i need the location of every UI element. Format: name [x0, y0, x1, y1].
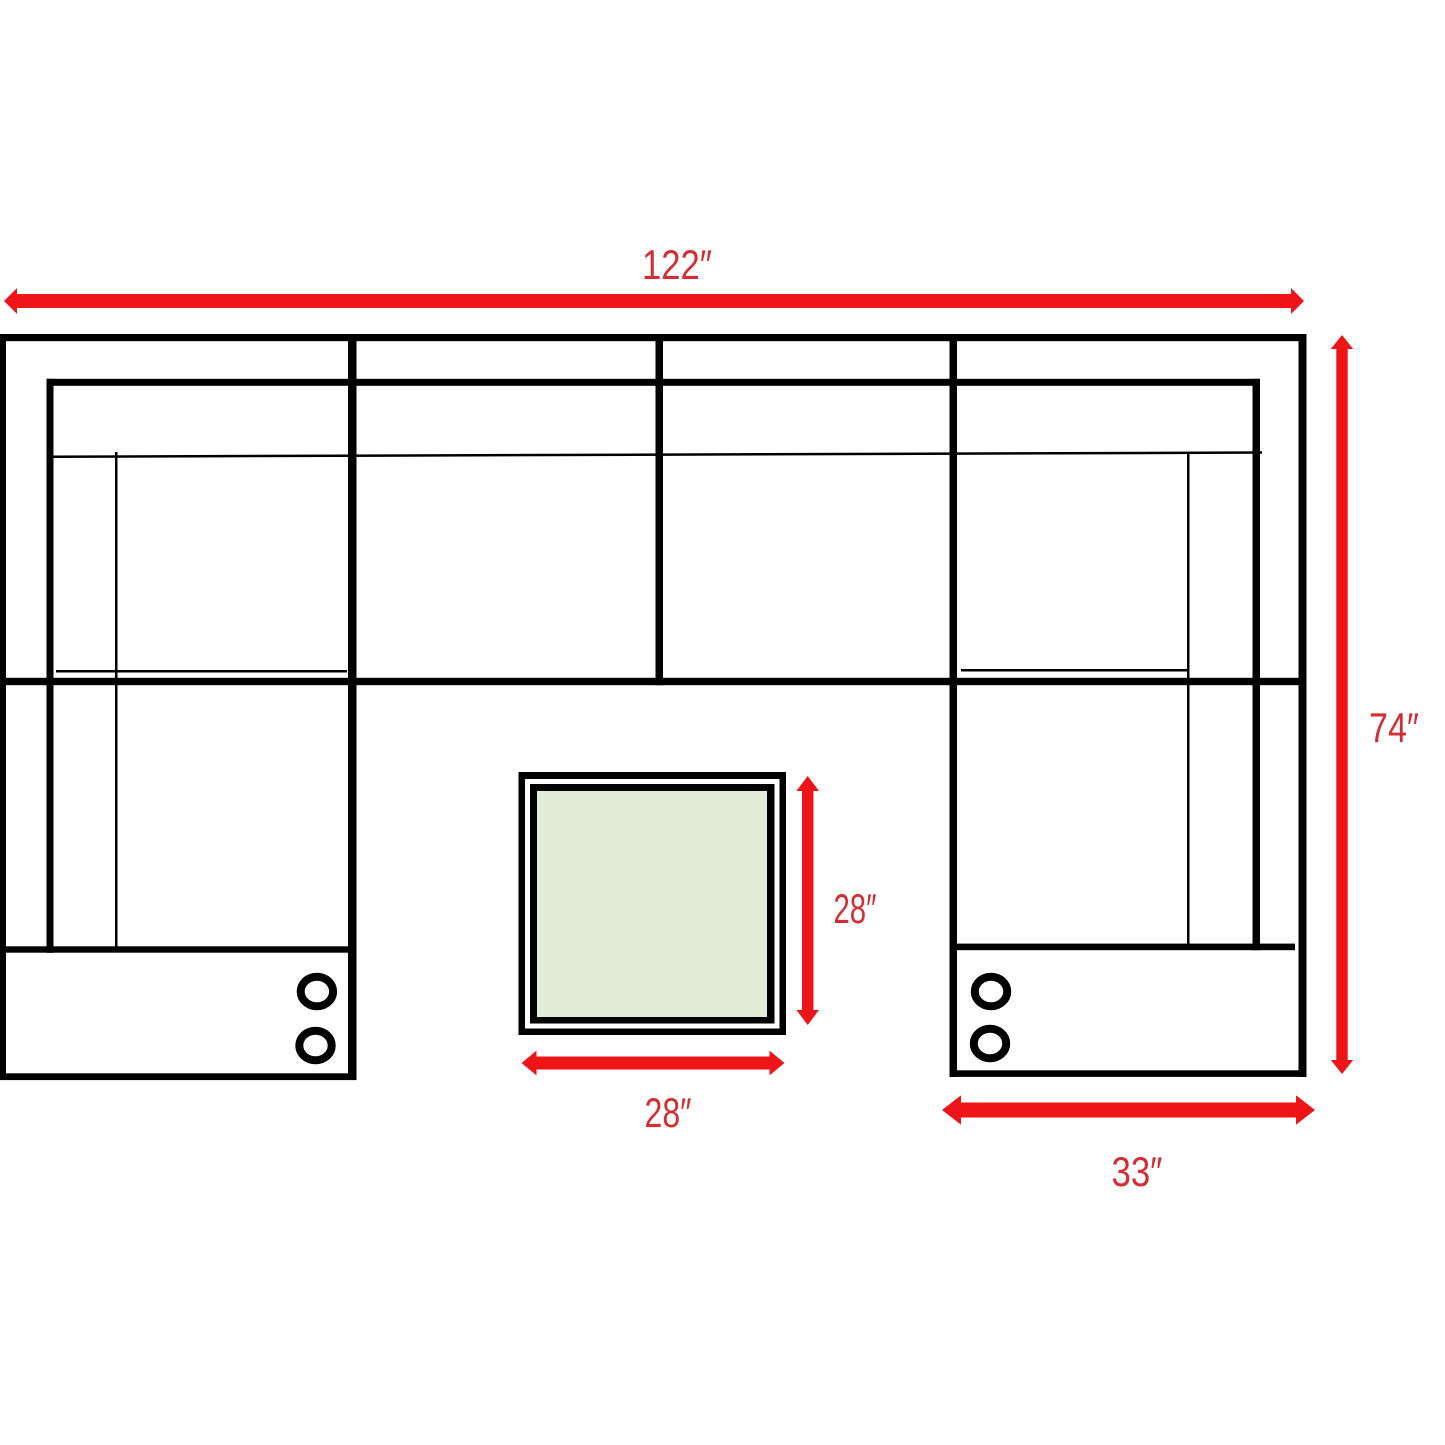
svg-text:74″: 74″	[1369, 704, 1419, 751]
svg-text:33″: 33″	[1112, 1148, 1163, 1195]
svg-text:122″: 122″	[642, 241, 712, 288]
svg-text:28″: 28″	[645, 1089, 692, 1136]
svg-text:28″: 28″	[834, 885, 877, 932]
